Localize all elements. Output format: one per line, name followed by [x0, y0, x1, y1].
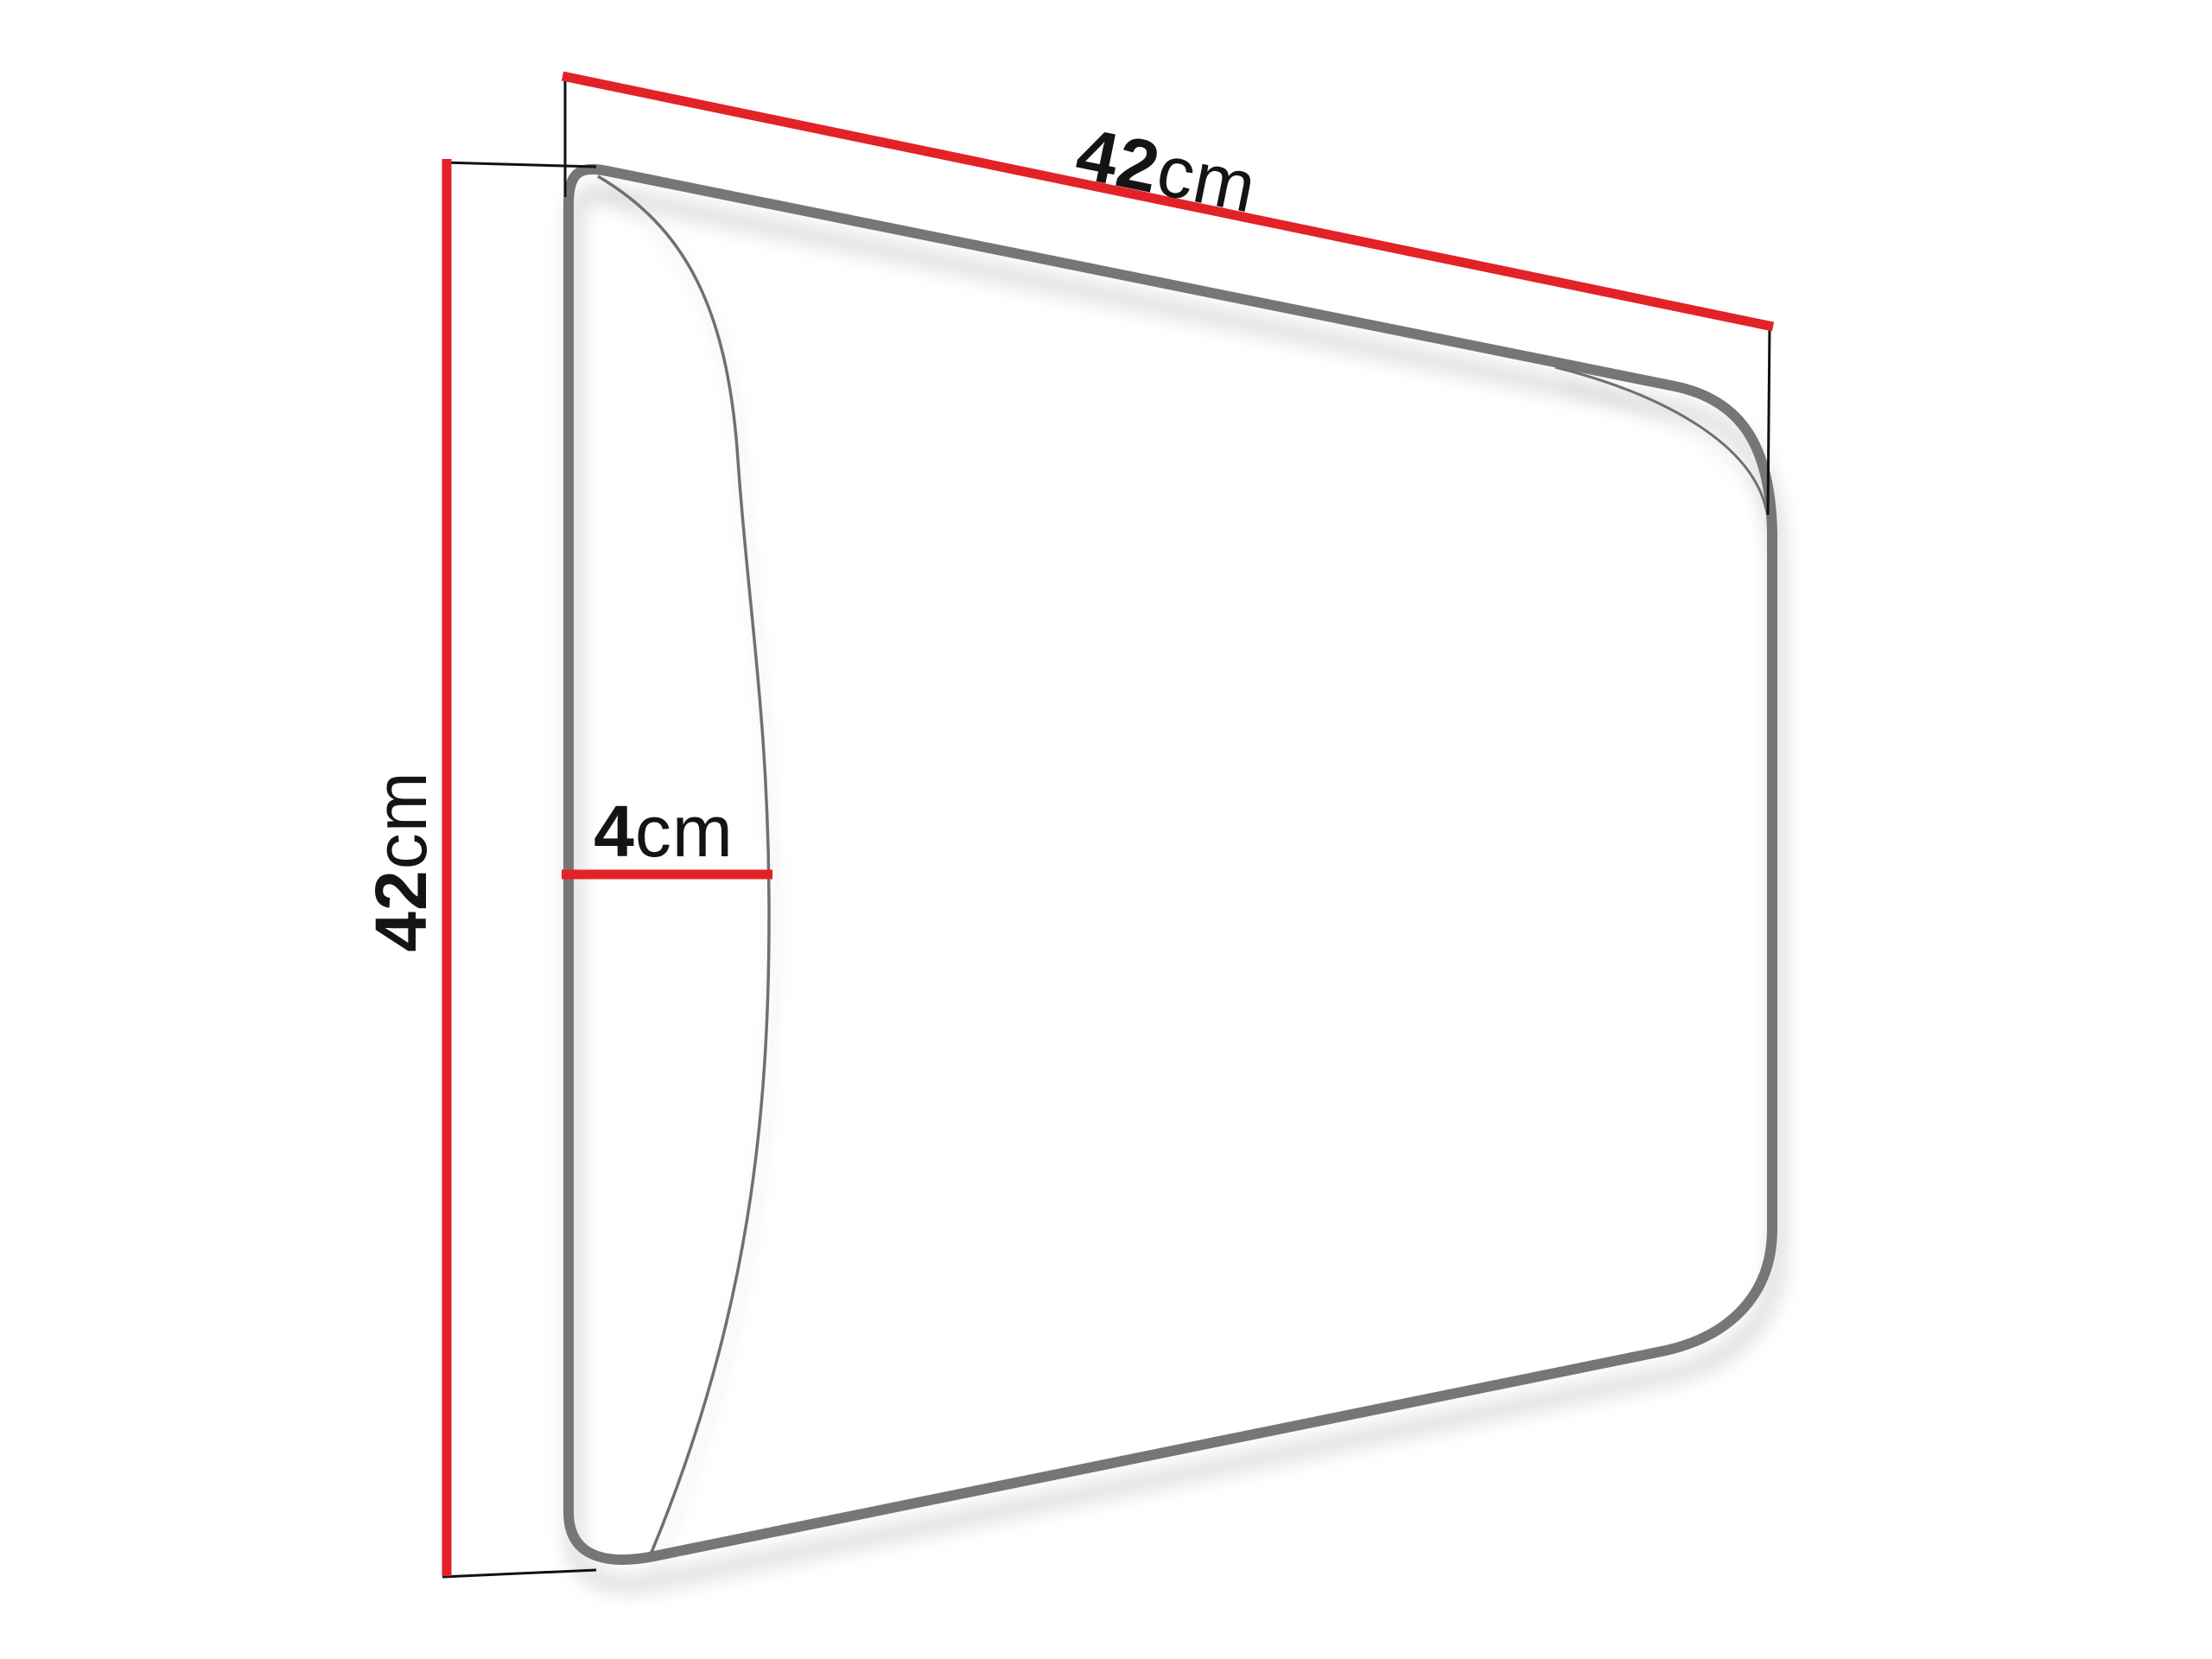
depth-label: 4cm: [594, 795, 734, 868]
depth-value: 4: [594, 791, 635, 872]
height-label: 42cm: [365, 771, 437, 951]
extension-line-left-bottom: [442, 1570, 596, 1577]
height-unit: cm: [360, 771, 442, 869]
depth-unit: cm: [635, 791, 734, 872]
extension-line-top-right: [1768, 325, 1770, 515]
dimension-drawing: 42cm 42cm 4cm: [0, 0, 2212, 1659]
height-value: 42: [360, 869, 442, 951]
panel-drawing-canvas: [0, 0, 2212, 1659]
extension-line-left-top: [442, 162, 596, 167]
